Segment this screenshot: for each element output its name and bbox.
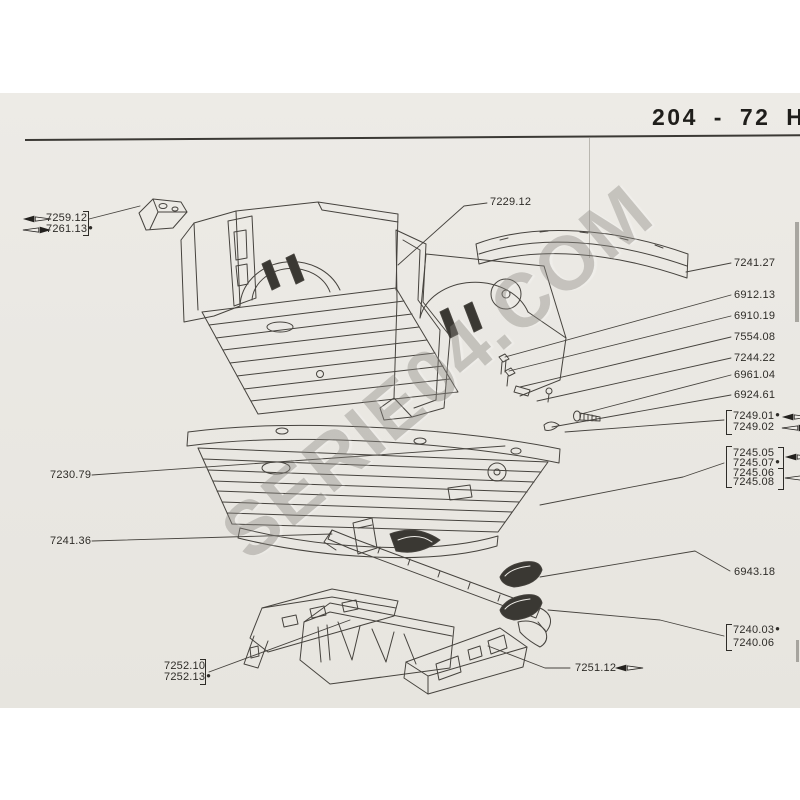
part-number-7229-12: 7229.12 <box>490 197 531 208</box>
catalog-page: 204 - 72 H <box>0 0 800 800</box>
part-number-7241-36: 7241.36 <box>50 536 91 547</box>
part-number-6924-61: 6924.61 <box>734 390 775 401</box>
part-number-text: 7252.13 <box>164 671 205 683</box>
center-support-pillar-drawing <box>380 230 450 420</box>
group-bracket <box>726 624 732 651</box>
part-number-7249-02: 7249.02 <box>733 422 774 433</box>
upper-cross-rail-drawing <box>476 231 688 278</box>
part-number-7244-22: 7244.22 <box>734 353 775 364</box>
exploded-parts-diagram <box>0 0 800 800</box>
part-number-7240-06: 7240.06 <box>733 638 774 649</box>
right-sill-panel-drawing <box>404 628 527 694</box>
right-direction-arrow-icon <box>784 473 800 483</box>
left-direction-arrow-icon <box>614 663 644 673</box>
variant-dot: ● <box>775 410 780 419</box>
left-direction-arrow-icon <box>784 452 800 462</box>
left-direction-arrow-icon <box>781 412 800 422</box>
variant-dot: ● <box>206 671 211 680</box>
part-number-6912-13: 6912.13 <box>734 290 775 301</box>
part-number-7554-08: 7554.08 <box>734 332 775 343</box>
part-number-6943-18: 6943.18 <box>734 567 775 578</box>
small-hardware-drawing <box>499 354 600 430</box>
lower-floor-pan-drawing <box>198 448 548 558</box>
group-bracket <box>726 446 732 488</box>
part-number-7230-79: 7230.79 <box>50 470 91 481</box>
part-number-text: 7261.13 <box>46 223 87 235</box>
part-number-7245-08: 7245.08 <box>733 477 774 488</box>
group-bracket <box>726 410 732 435</box>
part-number-6910-19: 6910.19 <box>734 311 775 322</box>
part-number-text: 7240.03 <box>733 624 774 636</box>
part-number-7241-27: 7241.27 <box>734 258 775 269</box>
part-number-6961-04: 6961.04 <box>734 370 775 381</box>
part-number-7251-12: 7251.12 <box>575 663 616 674</box>
group-bracket <box>83 211 89 236</box>
zigzag-gusset-drawing <box>300 603 454 684</box>
jack-bracket-parts-drawing <box>500 562 547 647</box>
left-wheel-arch-panel-drawing <box>181 202 398 322</box>
leader-lines <box>89 203 731 672</box>
upper-floor-pan-drawing <box>202 288 458 414</box>
part-number-7240-03: 7240.03● <box>733 625 780 636</box>
group-bracket <box>200 659 206 685</box>
variant-dot: ● <box>775 624 780 633</box>
corner-bracket-part-drawing <box>139 199 187 230</box>
right-direction-arrow-icon <box>781 423 800 433</box>
rear-cross-rail-drawing <box>187 425 560 463</box>
